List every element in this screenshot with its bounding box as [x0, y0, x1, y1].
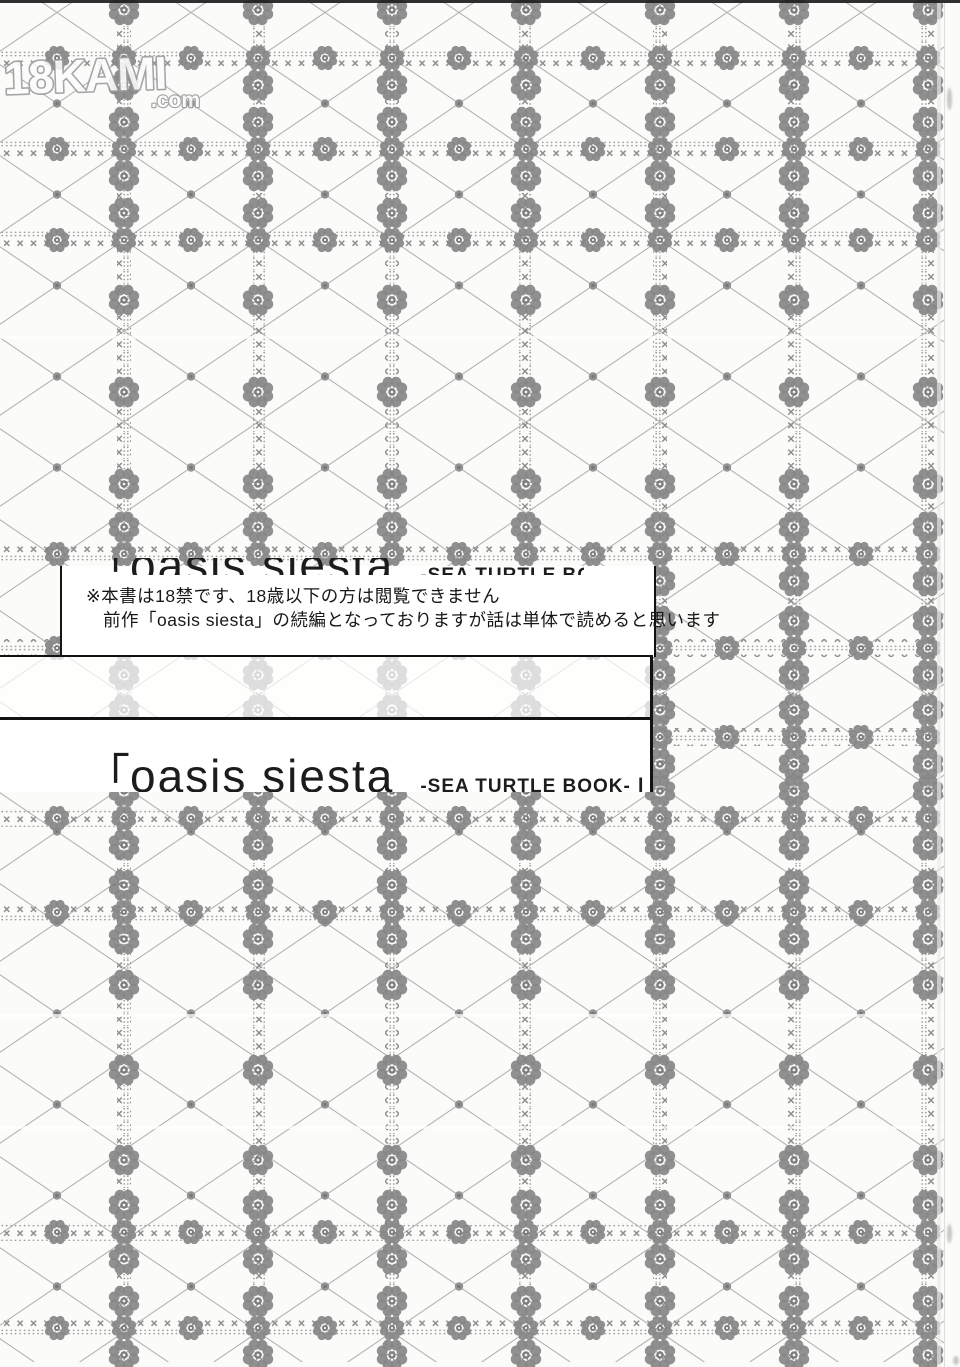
title-close-bracket: 」 — [633, 770, 650, 792]
clipped-title-open-bracket: 「 — [84, 558, 130, 575]
age-notice-line1: ※本書は18禁です、18歳以下の方は閲覧できません — [86, 583, 500, 608]
scan-strip-border — [650, 655, 653, 792]
scan-strip-border — [0, 655, 652, 658]
title-subtitle: -SEA TURTLE BOOK- — [420, 776, 631, 792]
title-open-bracket: 「 — [84, 750, 130, 792]
watermark-suffix-text: .com — [151, 89, 200, 112]
scan-right-margin — [945, 0, 960, 1367]
scan-smudge — [953, 1356, 959, 1365]
scan-smudge — [947, 88, 952, 110]
title-box: 「oasis siesta-SEA TURTLE BOOK-」 — [0, 720, 650, 792]
age-notice-line2: 前作「oasis siesta」の続編となっておりますが話は単体で読めると思いま… — [103, 607, 721, 632]
clipped-title-main: oasis siesta — [130, 558, 394, 575]
scanned-doujin-page: 18KAMI .com 「oasis siesta-SEA TURTLE BOO… — [0, 0, 960, 1367]
scan-fold-streak — [937, 0, 941, 1367]
overlapping-paper-strip — [0, 657, 650, 718]
title-main: oasis siesta — [130, 750, 394, 792]
clipped-title-subtitle: -SEA TURTLE BOOK- — [420, 565, 584, 575]
watermark-logo: 18KAMI .com — [0, 48, 230, 118]
scan-smudge — [947, 1224, 952, 1243]
age-notice-box: ※本書は18禁です、18歳以下の方は閲覧できません 前作「oasis siest… — [60, 566, 656, 657]
clipped-title-fragment: 「oasis siesta-SEA TURTLE BOOK-」 — [84, 558, 584, 575]
scan-strip-border — [0, 717, 652, 720]
scan-top-edge — [0, 0, 960, 3]
watermark-brand-text: 18KAMI — [3, 48, 167, 104]
